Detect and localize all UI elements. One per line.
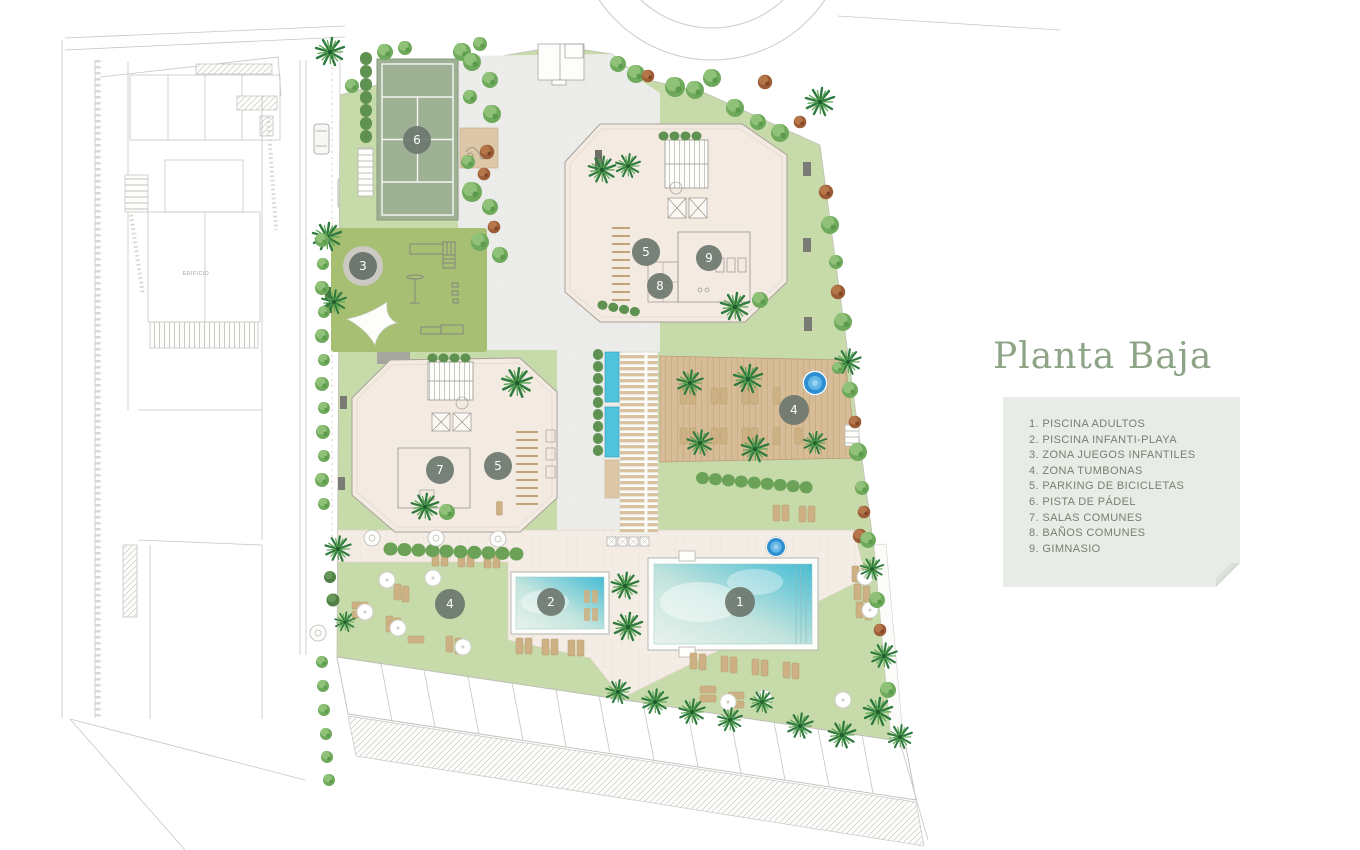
marker-common-rooms: 7 — [426, 456, 454, 484]
neighbor-building-label: EDIFICIO — [183, 271, 209, 277]
marker-sundeck: 4 — [779, 395, 809, 425]
legend-item-8: 8. BAÑOS COMUNES — [1029, 526, 1230, 542]
marker-lawn-loungers: 4 — [435, 589, 465, 619]
legend-item-3: 3. ZONA JUEGOS INFANTILES — [1029, 448, 1230, 464]
building-north — [565, 124, 787, 322]
entrance-pavilion — [538, 44, 584, 85]
sun-deck — [660, 356, 859, 462]
marker-gym: 9 — [696, 245, 722, 271]
svg-text:2: 2 — [547, 595, 555, 609]
spa-round-pool — [766, 537, 787, 558]
svg-text:1: 1 — [736, 595, 744, 609]
svg-text:8: 8 — [656, 279, 664, 293]
context-neighborhood — [62, 26, 345, 850]
svg-text:5: 5 — [494, 459, 502, 473]
legend-item-4: 4. ZONA TUMBONAS — [1029, 464, 1230, 480]
legend-item-2: 2. PISCINA INFANTI-PLAYA — [1029, 433, 1230, 449]
legend-item-7: 7. SALAS COMUNES — [1029, 511, 1230, 527]
svg-text:3: 3 — [359, 259, 367, 273]
svg-text:7: 7 — [436, 463, 444, 477]
legend-item-9: 9. GIMNASIO — [1029, 542, 1230, 558]
stairs-icon — [358, 148, 373, 196]
svg-text:4: 4 — [790, 403, 798, 417]
spa-jacuzzi — [803, 371, 828, 396]
svg-text:5: 5 — [642, 245, 650, 259]
water-feature — [605, 352, 619, 498]
marker-bikes-south: 5 — [484, 452, 512, 480]
svg-text:4: 4 — [446, 597, 454, 611]
marker-playground: 3 — [349, 252, 377, 280]
marker-bikes-north: 5 — [632, 238, 660, 266]
legend-panel: 1. PISCINA ADULTOS 2. PISCINA INFANTI-PL… — [1003, 397, 1240, 587]
page-title: Planta Baja — [993, 336, 1253, 377]
car-icon — [314, 124, 329, 154]
svg-text:6: 6 — [413, 133, 421, 147]
legend-item-1: 1. PISCINA ADULTOS — [1029, 417, 1230, 433]
road-roundabout — [576, 0, 1060, 60]
timber-walkway — [620, 352, 658, 534]
marker-padel: 6 — [403, 126, 431, 154]
legend-item-6: 6. PISTA DE PÁDEL — [1029, 495, 1230, 511]
playground — [325, 228, 487, 364]
site-plan-page: EDIFICIO — [0, 0, 1360, 850]
svg-text:9: 9 — [705, 251, 713, 265]
marker-adults-pool: 1 — [725, 587, 755, 617]
building-south — [352, 358, 557, 532]
legend-item-5: 5. PARKING DE BICICLETAS — [1029, 479, 1230, 495]
marker-bathrooms: 8 — [647, 273, 673, 299]
marker-kids-pool: 2 — [537, 588, 565, 616]
